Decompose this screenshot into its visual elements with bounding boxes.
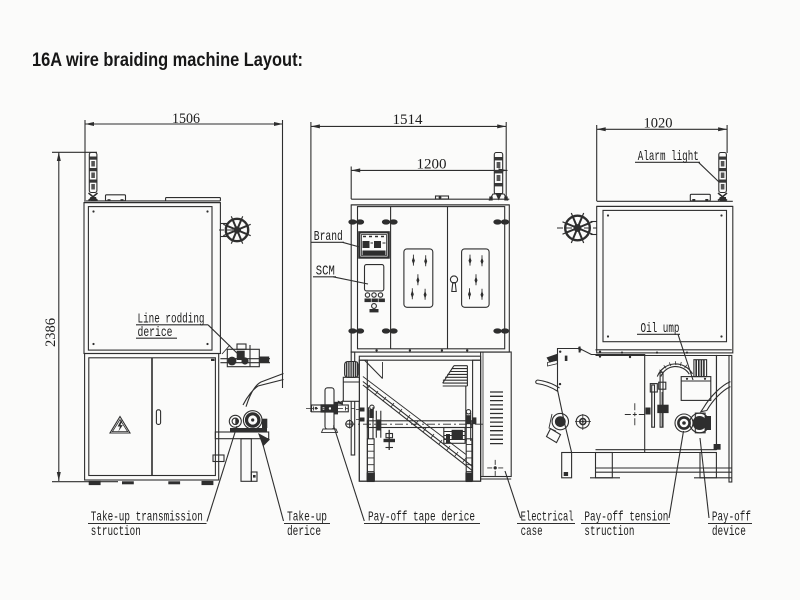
svg-text:1506: 1506 — [172, 111, 200, 127]
svg-text:struction: struction — [91, 524, 141, 540]
svg-text:struction: struction — [584, 524, 634, 540]
svg-text:case: case — [521, 524, 543, 540]
svg-text:2386: 2386 — [43, 318, 59, 347]
svg-text:device: device — [712, 524, 746, 540]
svg-text:16A wire braiding machine Layo: 16A wire braiding machine Layout: — [32, 49, 303, 71]
svg-text:1514: 1514 — [393, 112, 424, 128]
svg-text:1200: 1200 — [417, 157, 447, 173]
svg-text:derice: derice — [287, 524, 321, 540]
svg-text:1020: 1020 — [644, 116, 673, 132]
